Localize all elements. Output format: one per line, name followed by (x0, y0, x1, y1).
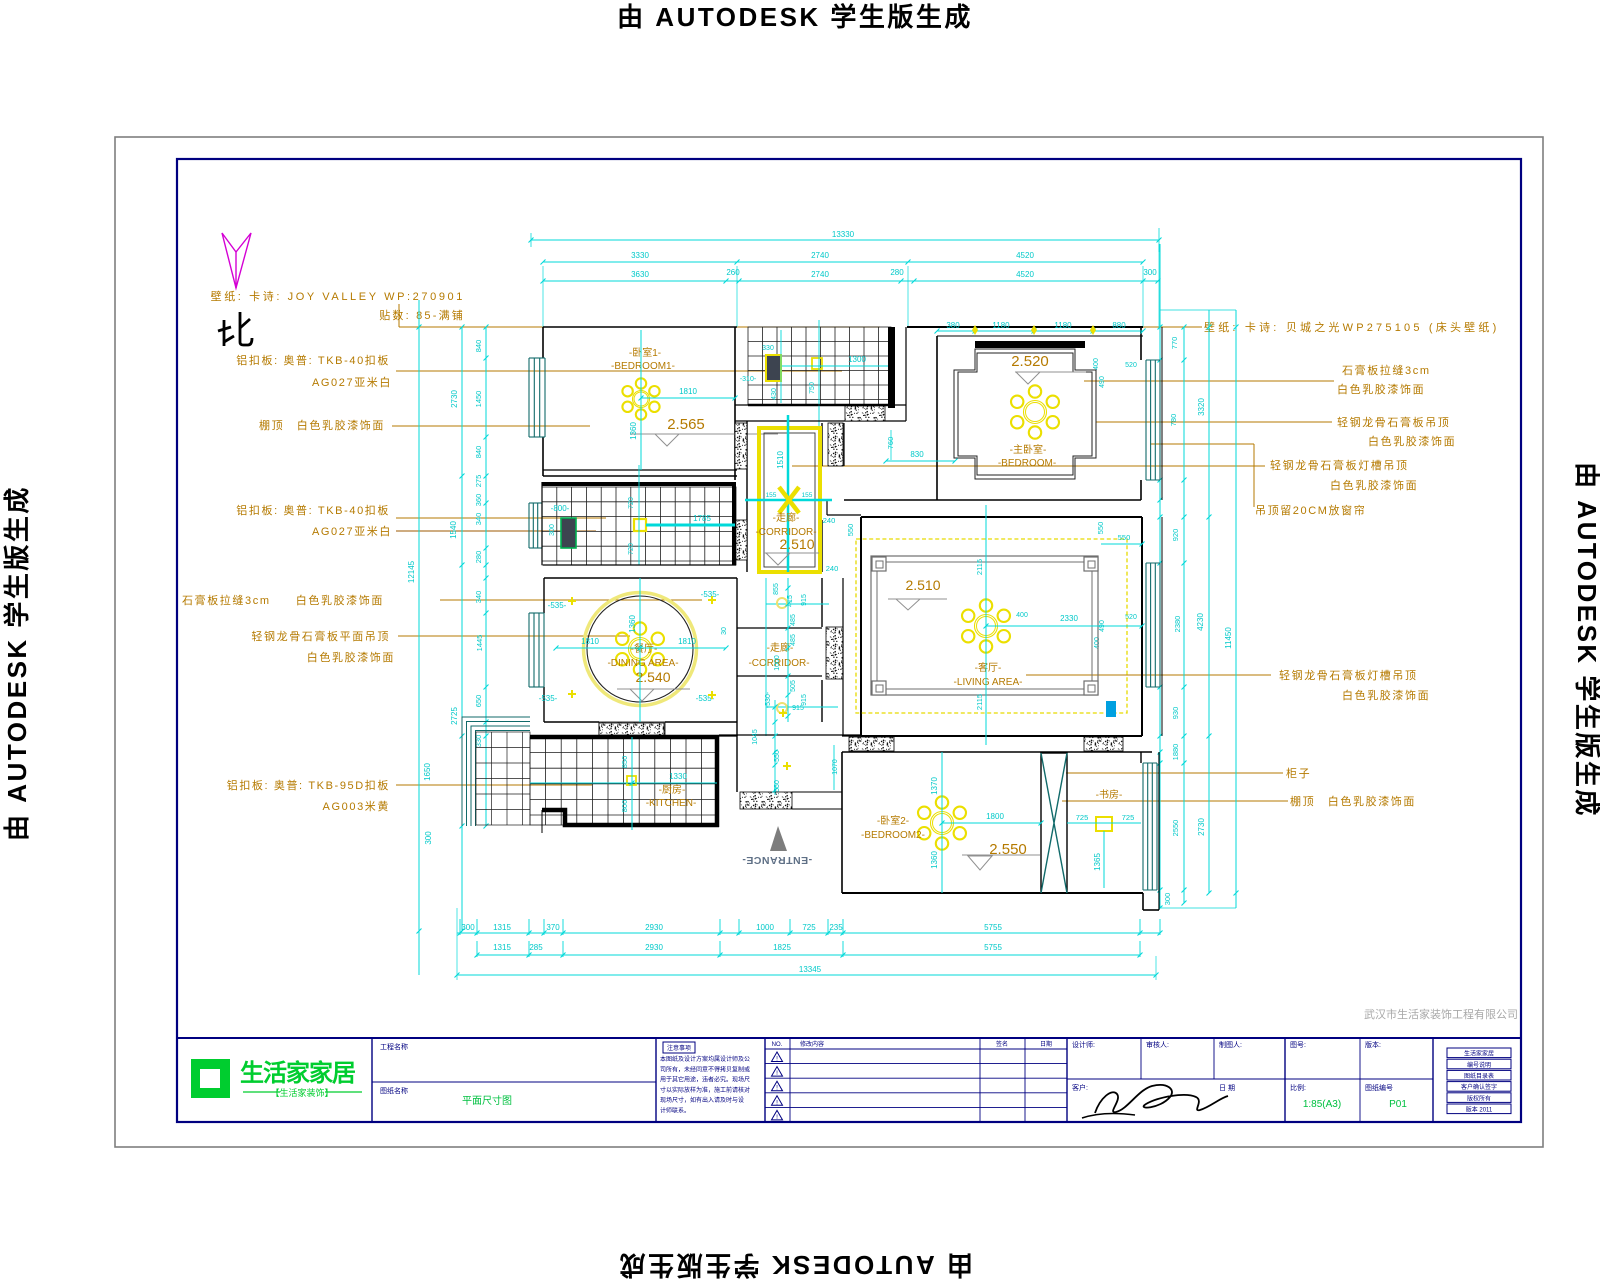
svg-text:1180: 1180 (992, 321, 1010, 330)
svg-text:1785: 1785 (693, 514, 711, 523)
svg-text:由 AUTODESK 学生版生成: 由 AUTODESK 学生版生成 (617, 2, 973, 32)
svg-text:铝扣板: 奥普: TKB-40扣板: 铝扣板: 奥普: TKB-40扣板 (236, 503, 390, 517)
svg-text:石膏板拉缝3cm 白色乳胶漆饰面: 石膏板拉缝3cm 白色乳胶漆饰面 (182, 593, 384, 607)
svg-text:比例:: 比例: (1290, 1083, 1306, 1092)
svg-text:签名: 签名 (996, 1040, 1008, 1048)
svg-text:审核人:: 审核人: (1146, 1040, 1169, 1049)
svg-text:石膏板拉缝3cm: 石膏板拉缝3cm (1342, 363, 1431, 377)
svg-text:1:85(A3): 1:85(A3) (1303, 1099, 1341, 1110)
svg-text:日期: 日期 (1040, 1040, 1052, 1048)
svg-text:制图人:: 制图人: (1219, 1040, 1242, 1049)
svg-text:550: 550 (774, 750, 781, 762)
svg-text:400: 400 (1093, 358, 1100, 370)
svg-text:1045: 1045 (752, 729, 759, 745)
svg-text:-DINING AREA-: -DINING AREA- (607, 658, 678, 669)
svg-text:1510: 1510 (776, 451, 785, 469)
svg-text:915: 915 (801, 594, 808, 606)
svg-text:客户:: 客户: (1072, 1083, 1088, 1092)
svg-text:贴数: 85-满铺: 贴数: 85-满铺 (379, 308, 465, 322)
svg-text:490: 490 (1099, 376, 1106, 388)
svg-text:3630: 3630 (631, 270, 649, 279)
svg-text:图纸名称: 图纸名称 (380, 1086, 408, 1095)
svg-text:550: 550 (774, 780, 781, 792)
svg-text:1650: 1650 (423, 763, 432, 781)
svg-text:2740: 2740 (811, 270, 829, 279)
svg-text:武汉市生活家装饰工程有限公司: 武汉市生活家装饰工程有限公司 (1364, 1007, 1518, 1021)
svg-text:-厨房-: -厨房- (659, 783, 686, 796)
svg-text:235: 235 (829, 923, 843, 932)
svg-text:5755: 5755 (984, 943, 1002, 952)
svg-text:AG027亚米白: AG027亚米白 (312, 524, 392, 538)
svg-text:1315: 1315 (493, 923, 511, 932)
svg-text:12145: 12145 (407, 560, 416, 583)
svg-text:725: 725 (1076, 813, 1089, 822)
svg-text:-卧室1-: -卧室1- (629, 346, 661, 359)
svg-text:260: 260 (726, 268, 740, 277)
svg-text:-BEDROOM2-: -BEDROOM2- (861, 830, 925, 841)
svg-text:-LIVING AREA-: -LIVING AREA- (954, 677, 1023, 688)
svg-text:4520: 4520 (1016, 270, 1034, 279)
svg-text:2730: 2730 (450, 390, 459, 408)
svg-text:2380: 2380 (1173, 616, 1182, 633)
svg-text:505: 505 (790, 680, 797, 692)
svg-text:300: 300 (461, 923, 475, 932)
svg-text:485: 485 (790, 634, 797, 646)
svg-text:-BEDROOM-: -BEDROOM- (998, 458, 1056, 469)
svg-text:340: 340 (474, 513, 483, 526)
svg-text:-535-: -535- (539, 694, 558, 703)
svg-text:3320: 3320 (1197, 398, 1206, 416)
svg-text:770: 770 (1170, 337, 1179, 350)
svg-text:240: 240 (823, 516, 836, 525)
svg-text:550: 550 (1096, 522, 1105, 535)
svg-text:柜子: 柜子 (1286, 767, 1311, 780)
svg-text:1450: 1450 (474, 391, 483, 408)
svg-text:275: 275 (474, 475, 483, 488)
svg-text:725: 725 (802, 923, 816, 932)
svg-text:2725: 2725 (450, 707, 459, 725)
svg-text:1360: 1360 (628, 615, 637, 633)
svg-text:550: 550 (846, 524, 855, 537)
svg-text:2.540: 2.540 (635, 669, 670, 685)
svg-text:轻钢龙骨石膏板吊顶: 轻钢龙骨石膏板吊顶 (1337, 415, 1450, 429)
svg-text:棚顶 白色乳胶漆饰面: 棚顶 白色乳胶漆饰面 (1290, 794, 1416, 808)
svg-text:930: 930 (1171, 707, 1180, 720)
svg-text:1810: 1810 (581, 637, 599, 646)
svg-text:由 AUTODESK 学生版生成: 由 AUTODESK 学生版生成 (2, 485, 32, 841)
svg-text:铝扣板: 奥普: TKB-40扣板: 铝扣板: 奥普: TKB-40扣板 (236, 353, 390, 367)
svg-text:850: 850 (620, 756, 629, 769)
svg-text:!: ! (776, 1099, 778, 1106)
svg-text:920: 920 (1171, 529, 1180, 542)
svg-text:1800: 1800 (986, 812, 1004, 821)
svg-text:NO.: NO. (772, 1042, 783, 1048)
svg-text:!: ! (776, 1085, 778, 1092)
svg-text:650: 650 (474, 695, 483, 708)
svg-text:840: 840 (474, 340, 483, 353)
svg-text:生活家家居: 生活家家居 (240, 1059, 355, 1087)
svg-text:轻钢龙骨石膏板灯槽吊顶: 轻钢龙骨石膏板灯槽吊顶 (1279, 668, 1418, 682)
svg-text:300: 300 (424, 831, 433, 845)
svg-text:P01: P01 (1389, 1099, 1407, 1110)
svg-text:1180: 1180 (1054, 321, 1072, 330)
svg-text:340: 340 (474, 591, 483, 604)
svg-text:2740: 2740 (811, 251, 829, 260)
svg-text:30: 30 (721, 627, 728, 635)
svg-text:平面尺寸图: 平面尺寸图 (462, 1094, 512, 1107)
svg-text:生活家家居: 生活家家居 (1464, 1050, 1494, 1058)
svg-text:2330: 2330 (1060, 614, 1078, 623)
svg-text:-535-: -535- (548, 601, 567, 610)
svg-text:-535-: -535- (701, 590, 720, 599)
svg-text:司所有，未经同意不得拷贝复制或: 司所有，未经同意不得拷贝复制或 (660, 1065, 750, 1073)
svg-text:-ENTRANCE-: -ENTRANCE- (742, 854, 812, 866)
svg-text:13345: 13345 (799, 965, 822, 974)
svg-text:280: 280 (890, 268, 904, 277)
svg-text:1825: 1825 (773, 943, 791, 952)
svg-text:840: 840 (474, 446, 483, 459)
svg-text:设计师:: 设计师: (1072, 1040, 1095, 1049)
svg-text:1445: 1445 (475, 635, 484, 652)
svg-text:-BEDROOM1-: -BEDROOM1- (611, 361, 675, 372)
svg-text:!: ! (776, 1070, 778, 1077)
svg-text:800: 800 (620, 800, 629, 813)
svg-text:2115: 2115 (975, 694, 984, 710)
svg-text:360: 360 (474, 494, 483, 507)
svg-text:-走廊-: -走廊- (773, 511, 800, 524)
svg-text:1880: 1880 (1171, 744, 1180, 761)
svg-text:5755: 5755 (984, 923, 1002, 932)
svg-text:图号:: 图号: (1290, 1041, 1306, 1049)
svg-text:注意事项: 注意事项 (667, 1044, 691, 1052)
svg-text:300: 300 (549, 524, 556, 536)
svg-text:-客厅-: -客厅- (975, 661, 1002, 674)
svg-text:1300: 1300 (848, 355, 866, 364)
svg-text:725: 725 (1122, 813, 1135, 822)
svg-text:1360: 1360 (629, 422, 638, 440)
svg-text:750: 750 (809, 382, 816, 394)
svg-text:-KITCHEN-: -KITCHEN- (646, 798, 697, 809)
svg-text:720: 720 (628, 497, 635, 509)
svg-text:棚顶 白色乳胶漆饰面: 棚顶 白色乳胶漆饰面 (259, 418, 385, 432)
svg-text:2.565: 2.565 (667, 416, 705, 433)
svg-text:修改内容: 修改内容 (800, 1040, 824, 1048)
svg-text:485: 485 (790, 614, 797, 626)
svg-text:由 AUTODESK 学生版生成: 由 AUTODESK 学生版生成 (1572, 462, 1600, 818)
svg-text:寸以实际放样为准，施工前请核对: 寸以实际放样为准，施工前请核对 (660, 1086, 750, 1094)
svg-text:400: 400 (1016, 612, 1028, 619)
svg-text:-800-: -800- (551, 504, 570, 513)
svg-text:1315: 1315 (493, 943, 511, 952)
svg-text:280: 280 (474, 551, 483, 564)
svg-text:2730: 2730 (1197, 818, 1206, 836)
svg-text:155: 155 (802, 492, 813, 499)
svg-text:-主卧室-: -主卧室- (1010, 443, 1047, 456)
svg-text:720: 720 (628, 543, 635, 555)
svg-text:330: 330 (762, 345, 774, 352)
svg-text:!: ! (776, 1056, 778, 1063)
svg-text:版本 2011: 版本 2011 (1466, 1106, 1493, 1114)
svg-text:图纸编号: 图纸编号 (1365, 1083, 1393, 1092)
svg-text:830: 830 (910, 450, 924, 459)
svg-text:现场尺寸，如有出入请及时与设: 现场尺寸，如有出入请及时与设 (660, 1096, 744, 1104)
svg-text:白色乳胶漆饰面: 白色乳胶漆饰面 (1368, 434, 1456, 448)
svg-text:版本:: 版本: (1365, 1040, 1381, 1049)
svg-text:285: 285 (529, 943, 543, 952)
svg-text:-书房-: -书房- (1096, 788, 1123, 801)
svg-text:13330: 13330 (832, 230, 855, 239)
svg-text:AG003米黄: AG003米黄 (323, 799, 390, 813)
svg-text:白色乳胶漆饰面: 白色乳胶漆饰面 (1342, 688, 1430, 702)
svg-text:780: 780 (1169, 414, 1178, 427)
svg-text:300: 300 (1163, 893, 1172, 906)
svg-text:300: 300 (1143, 268, 1157, 277)
svg-text:铝扣板: 奥普: TKB-95D扣板: 铝扣板: 奥普: TKB-95D扣板 (227, 778, 390, 792)
svg-text:520: 520 (1125, 362, 1137, 369)
svg-text:760: 760 (886, 437, 895, 450)
svg-text:日 期: 日 期 (1219, 1084, 1235, 1092)
svg-text:880: 880 (1112, 321, 1126, 330)
svg-text:4230: 4230 (1196, 613, 1205, 631)
svg-text:-310-: -310- (740, 376, 757, 383)
svg-text:2930: 2930 (645, 943, 663, 952)
svg-text:版权所有: 版权所有 (1467, 1094, 1491, 1102)
svg-text:1000: 1000 (756, 923, 774, 932)
svg-text:编号说明: 编号说明 (1467, 1061, 1491, 1069)
svg-text:2115: 2115 (975, 559, 984, 575)
svg-text:1360: 1360 (930, 851, 939, 869)
svg-text:轻钢龙骨石膏板平面吊顶: 轻钢龙骨石膏板平面吊顶 (251, 629, 390, 643)
svg-text:1370: 1370 (930, 777, 939, 795)
svg-text:壁纸: 卡诗: JOY VALLEY WP:270901: 壁纸: 卡诗: JOY VALLEY WP:270901 (211, 289, 465, 303)
svg-text:1810: 1810 (678, 637, 696, 646)
svg-text:!: ! (776, 1114, 778, 1121)
svg-text:白色乳胶漆饰面: 白色乳胶漆饰面 (1330, 478, 1418, 492)
svg-text:工程名称: 工程名称 (380, 1042, 408, 1051)
svg-text:155: 155 (766, 492, 777, 499)
svg-text:240: 240 (826, 564, 839, 573)
svg-text:1000: 1000 (774, 655, 781, 671)
svg-text:370: 370 (546, 923, 560, 932)
svg-text:2.510: 2.510 (779, 536, 814, 552)
svg-text:550: 550 (1118, 533, 1131, 542)
svg-text:-卧室2-: -卧室2- (877, 814, 909, 827)
svg-text:轻钢龙骨石膏板灯槽吊顶: 轻钢龙骨石膏板灯槽吊顶 (1270, 458, 1409, 472)
svg-text:用于其它用途，违者必究。现场尺: 用于其它用途，违者必究。现场尺 (660, 1076, 750, 1084)
svg-text:-530-: -530- (765, 691, 772, 708)
svg-text:1070: 1070 (832, 759, 839, 775)
svg-text:2930: 2930 (645, 923, 663, 932)
svg-text:2.520: 2.520 (1011, 353, 1049, 370)
svg-text:3330: 3330 (631, 251, 649, 260)
svg-text:吊顶留20CM放窗帘: 吊顶留20CM放窗帘 (1255, 503, 1366, 517)
svg-text:本图纸及设计方案均属设计师及公: 本图纸及设计方案均属设计师及公 (660, 1055, 750, 1063)
svg-text:430: 430 (771, 388, 778, 400)
svg-text:1540: 1540 (449, 521, 458, 539)
svg-text:1365: 1365 (1093, 853, 1102, 871)
svg-text:855: 855 (773, 583, 780, 595)
svg-text:客户确认签字: 客户确认签字 (1461, 1083, 1497, 1091)
svg-text:11450: 11450 (1224, 627, 1233, 649)
svg-text:【生活家装饰】: 【生活家装饰】 (270, 1087, 333, 1098)
svg-text:1810: 1810 (679, 387, 697, 396)
svg-text:4520: 4520 (1016, 251, 1034, 260)
svg-text:计师联系。: 计师联系。 (660, 1107, 690, 1115)
svg-text:图纸目录表: 图纸目录表 (1464, 1072, 1494, 1080)
svg-text:915: 915 (792, 705, 804, 712)
svg-text:白色乳胶漆饰面: 白色乳胶漆饰面 (307, 650, 395, 664)
svg-text:壁纸: 卡诗: 贝城之光WP275105 (床头壁纸): 壁纸: 卡诗: 贝城之光WP275105 (床头壁纸) (1204, 320, 1499, 334)
svg-text:1330: 1330 (669, 772, 687, 781)
svg-text:380: 380 (946, 321, 960, 330)
svg-text:由 AUTODESK 学生版生成: 由 AUTODESK 学生版生成 (617, 1250, 973, 1280)
svg-text:AG027亚米白: AG027亚米白 (312, 375, 392, 389)
svg-text:白色乳胶漆饰面: 白色乳胶漆饰面 (1337, 382, 1425, 396)
svg-text:2550: 2550 (1171, 820, 1180, 837)
svg-text:2.510: 2.510 (905, 577, 940, 593)
